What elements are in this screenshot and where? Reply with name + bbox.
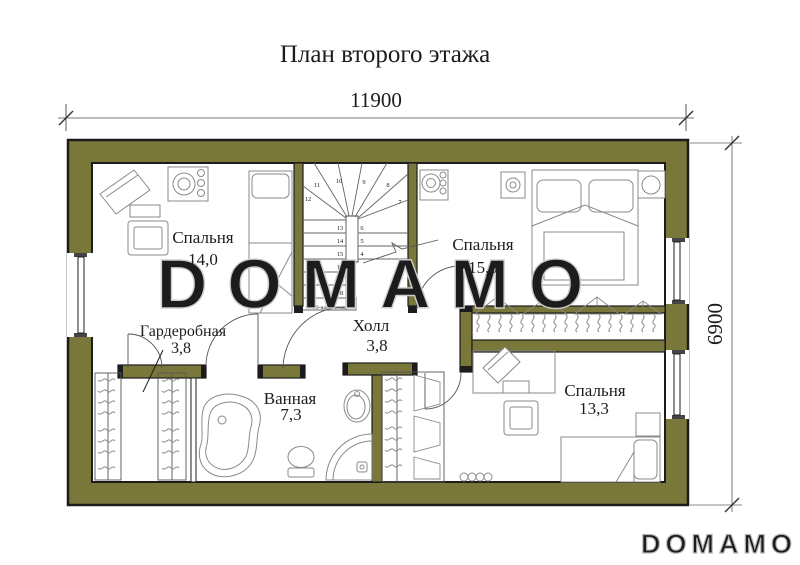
corner-table xyxy=(638,171,665,198)
svg-text:10: 10 xyxy=(336,178,343,185)
floor-plan-drawing: План второго этажа 11900 6900 xyxy=(0,0,800,565)
page-title: План второго этажа xyxy=(280,41,490,68)
speaker-unit xyxy=(501,172,525,198)
dimension-right-value: 6900 xyxy=(703,303,727,345)
stove-unit-2 xyxy=(420,170,448,200)
single-bed xyxy=(561,437,660,482)
stove-unit xyxy=(168,167,208,201)
svg-text:7,3: 7,3 xyxy=(280,405,301,424)
svg-text:Спальня: Спальня xyxy=(452,235,513,254)
window-right-top xyxy=(666,238,689,304)
watermark: DOMAMO xyxy=(157,245,604,323)
svg-text:13: 13 xyxy=(337,225,344,232)
svg-text:13,3: 13,3 xyxy=(579,399,609,418)
svg-text:Холл: Холл xyxy=(353,316,390,335)
svg-text:14,0: 14,0 xyxy=(188,250,218,269)
dimension-top-value: 11900 xyxy=(350,88,402,112)
nightstand xyxy=(636,413,660,436)
chair xyxy=(504,401,538,435)
svg-text:9: 9 xyxy=(362,179,365,186)
svg-text:3,8: 3,8 xyxy=(171,340,191,357)
svg-text:12: 12 xyxy=(305,196,312,203)
side-table xyxy=(130,205,160,217)
window-left xyxy=(67,253,93,337)
svg-text:Спальня: Спальня xyxy=(172,228,233,247)
window-right-bottom xyxy=(666,350,689,419)
svg-text:15,0: 15,0 xyxy=(468,258,498,277)
svg-text:5: 5 xyxy=(360,238,363,245)
svg-text:Гардеробная: Гардеробная xyxy=(140,323,227,340)
svg-text:Спальня: Спальня xyxy=(564,381,625,400)
svg-text:11: 11 xyxy=(314,182,320,189)
svg-text:14: 14 xyxy=(337,238,344,245)
thin-wall xyxy=(191,378,196,482)
svg-text:8: 8 xyxy=(386,182,389,189)
footer-logo: DOMAMO xyxy=(641,529,797,559)
floor-plan-page: План второго этажа 11900 6900 xyxy=(0,0,800,565)
svg-text:3,8: 3,8 xyxy=(366,336,387,355)
